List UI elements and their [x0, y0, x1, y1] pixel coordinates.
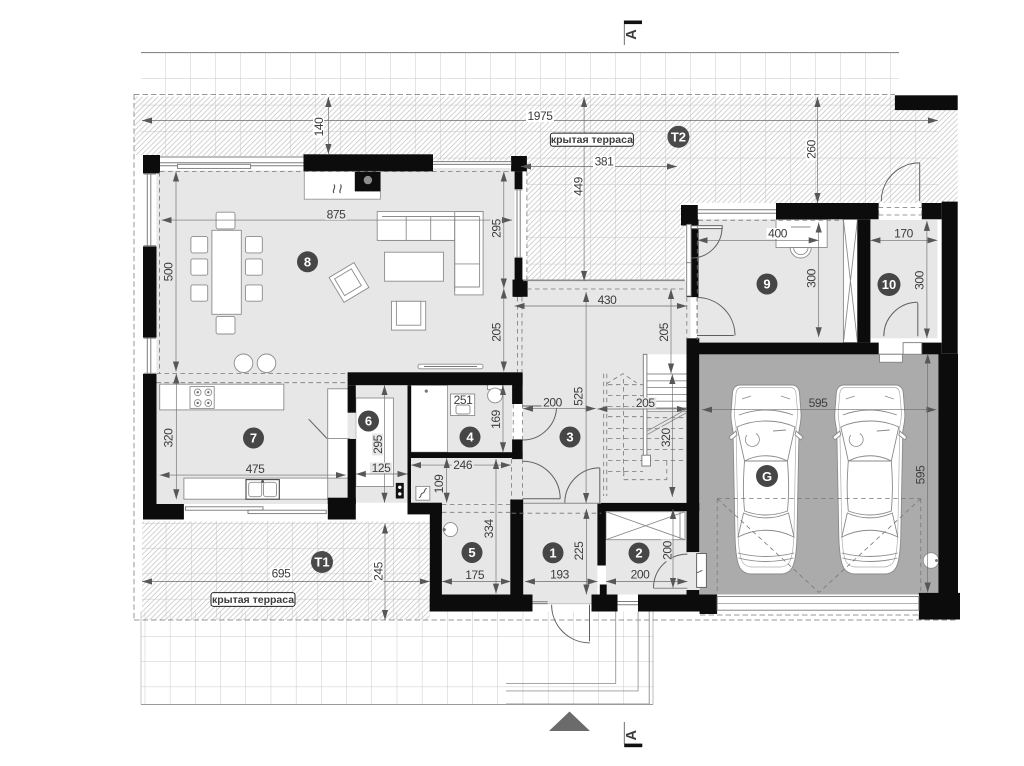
svg-text:3: 3 — [566, 430, 573, 445]
svg-text:295: 295 — [489, 218, 503, 238]
svg-text:205: 205 — [657, 322, 671, 342]
svg-text:крытая терраса: крытая терраса — [212, 594, 294, 606]
svg-text:175: 175 — [465, 568, 485, 582]
svg-text:260: 260 — [805, 139, 819, 159]
svg-text:475: 475 — [246, 462, 266, 476]
svg-text:T1: T1 — [314, 555, 329, 570]
svg-text:205: 205 — [636, 396, 656, 410]
svg-text:595: 595 — [809, 396, 829, 410]
svg-text:8: 8 — [304, 254, 311, 269]
svg-text:205: 205 — [489, 322, 503, 342]
svg-text:200: 200 — [543, 396, 563, 410]
svg-text:4: 4 — [466, 430, 474, 445]
svg-text:крытая терраса: крытая терраса — [551, 134, 633, 146]
svg-text:695: 695 — [272, 567, 292, 581]
svg-text:400: 400 — [768, 227, 788, 241]
svg-text:109: 109 — [432, 474, 446, 494]
svg-text:1975: 1975 — [527, 109, 553, 123]
svg-text:7: 7 — [250, 431, 257, 446]
svg-text:T2: T2 — [671, 129, 686, 144]
svg-text:125: 125 — [372, 461, 392, 475]
svg-text:193: 193 — [550, 568, 570, 582]
svg-text:225: 225 — [572, 541, 586, 561]
svg-text:2: 2 — [635, 546, 642, 561]
svg-text:169: 169 — [489, 409, 503, 429]
svg-text:381: 381 — [595, 155, 615, 169]
svg-text:1: 1 — [549, 545, 556, 560]
svg-text:10: 10 — [882, 277, 896, 292]
svg-text:320: 320 — [659, 428, 673, 448]
svg-text:5: 5 — [468, 545, 475, 560]
svg-text:430: 430 — [598, 293, 618, 307]
svg-text:595: 595 — [914, 465, 928, 485]
svg-text:449: 449 — [571, 176, 585, 196]
svg-text:200: 200 — [660, 540, 674, 560]
svg-text:251: 251 — [454, 393, 474, 407]
svg-text:320: 320 — [162, 428, 176, 448]
svg-text:875: 875 — [327, 208, 347, 222]
svg-text:A: A — [624, 730, 640, 741]
svg-text:500: 500 — [162, 262, 176, 282]
svg-text:140: 140 — [312, 117, 326, 137]
svg-text:200: 200 — [631, 568, 651, 582]
svg-text:9: 9 — [763, 277, 770, 292]
svg-text:G: G — [762, 469, 772, 484]
svg-text:300: 300 — [913, 270, 927, 290]
svg-text:334: 334 — [482, 519, 496, 539]
svg-text:300: 300 — [804, 268, 818, 288]
svg-text:A: A — [624, 29, 640, 40]
svg-text:295: 295 — [371, 434, 385, 454]
svg-text:6: 6 — [365, 414, 372, 429]
svg-text:246: 246 — [453, 458, 473, 472]
svg-text:170: 170 — [894, 227, 914, 241]
svg-text:525: 525 — [571, 386, 585, 406]
svg-text:245: 245 — [371, 561, 385, 581]
